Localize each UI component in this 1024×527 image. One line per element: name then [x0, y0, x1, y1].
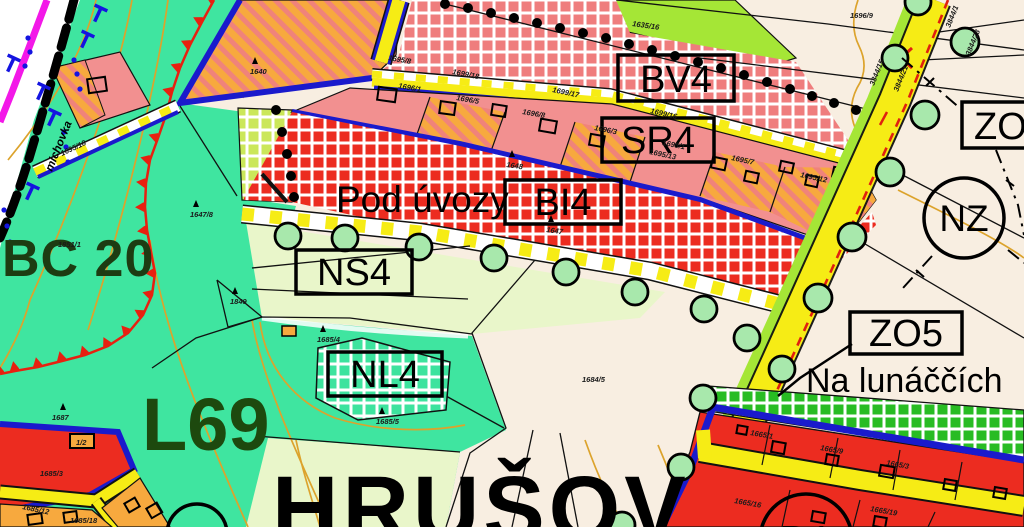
nz-label: NZ	[939, 198, 988, 239]
ns4-label: NS4	[317, 252, 391, 294]
zoning-map[interactable]: BV4 SR4 BI4 NS4 NL4 ZO5 ZO NZ B1 BC 20 L…	[0, 0, 1024, 527]
parcel-number: 1647/8	[190, 210, 214, 219]
bi4-label: BI4	[534, 182, 591, 224]
parcel-number: 1696/9	[850, 11, 874, 20]
b1-label: B1	[779, 517, 833, 527]
l69-zone-label: L69	[142, 383, 270, 466]
na-lunaccich-place-label: Na lunáččích	[806, 362, 1003, 400]
parcel-number: 1685/4	[317, 335, 341, 344]
parcel-number: 1849	[230, 297, 248, 306]
zo-label: ZO	[974, 106, 1024, 148]
small-building	[282, 326, 296, 336]
zo5-label: ZO5	[869, 313, 943, 355]
parcel-number: 1685/3	[40, 469, 64, 478]
parcel-number: 1685/18	[70, 516, 98, 525]
parcel-number: 1684/5	[582, 375, 606, 384]
parcel-number: 1685/5	[376, 417, 400, 426]
zoning-map-canvas: BV4 SR4 BI4 NS4 NL4 ZO5 ZO NZ B1 BC 20 L…	[0, 0, 1024, 527]
parcel-number: 1/2	[76, 438, 87, 447]
parcel-number: 1851/1	[58, 240, 81, 249]
bv4-label: BV4	[640, 59, 712, 101]
pod-uvozy-place-label: Pod úvozy	[336, 179, 509, 220]
nl4-label: NL4	[350, 354, 420, 396]
parcel-number: 1640	[250, 67, 268, 76]
hrusov-town-label: HRUŠOV	[272, 457, 690, 527]
bc20-zone-label: BC 20	[2, 230, 154, 288]
parcel-number: 1687	[52, 413, 70, 422]
